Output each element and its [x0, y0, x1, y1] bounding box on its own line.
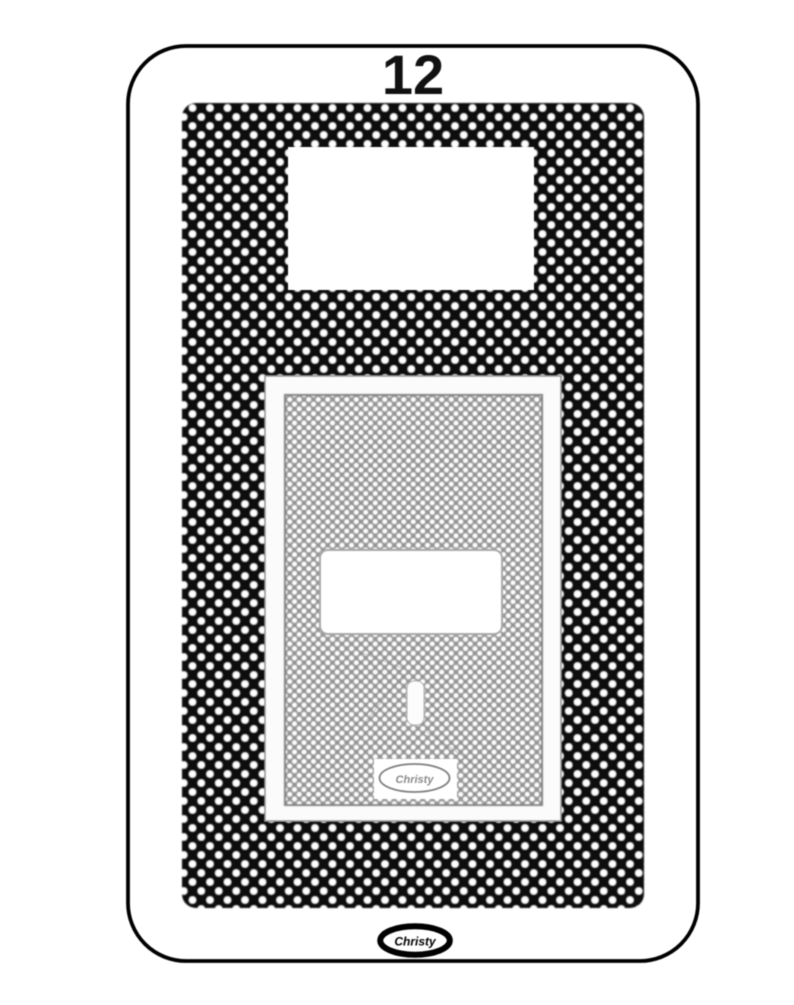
svg-text:Christy: Christy: [394, 935, 437, 949]
svg-text:12: 12: [382, 43, 444, 106]
svg-text:Christy: Christy: [396, 774, 435, 786]
